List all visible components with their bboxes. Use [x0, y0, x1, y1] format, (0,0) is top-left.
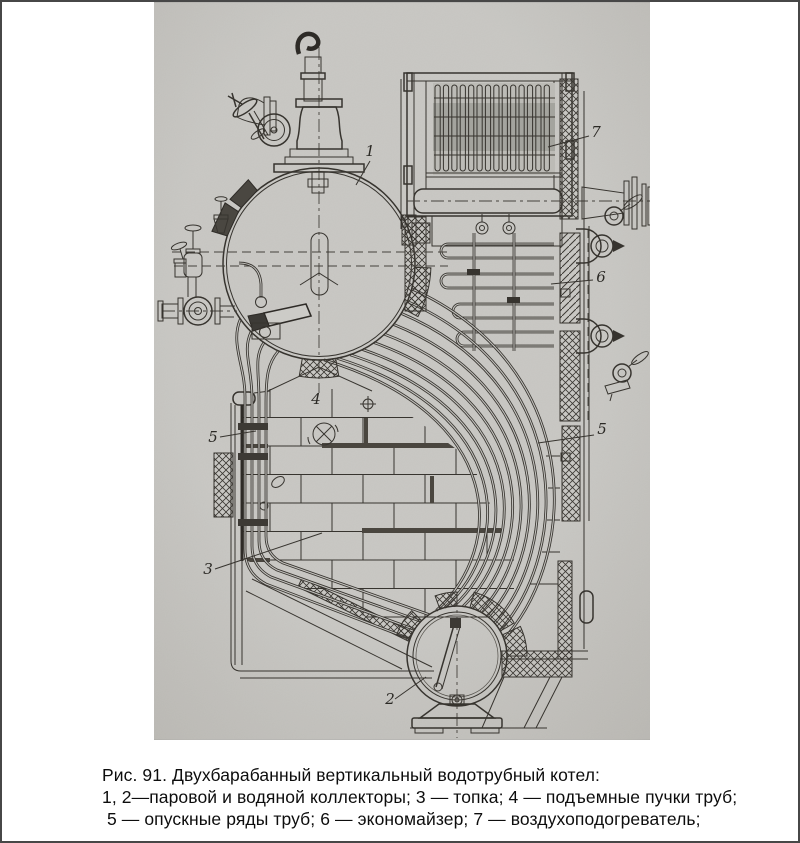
label-furnace: 3	[203, 560, 213, 578]
boiler-technical-drawing: 1 2 3 4 5 5 6 7	[154, 2, 650, 740]
caption-legend-line2: 5 — опускные ряды труб; 6 — экономайзер;…	[102, 808, 737, 830]
label-lower-drum: 2	[384, 690, 395, 708]
label-downcomers-right: 5	[597, 420, 607, 438]
caption-legend-line1: 1, 2—паровой и водяной коллекторы; 3 — т…	[102, 786, 737, 808]
label-riser-tubes: 4	[310, 390, 321, 408]
label-economizer: 6	[596, 268, 606, 286]
figure-caption: Рис. 91. Двухбарабанный вертикальный вод…	[102, 764, 737, 830]
caption-title: Рис. 91. Двухбарабанный вертикальный вод…	[102, 764, 737, 786]
label-upper-drum: 1	[365, 142, 375, 160]
figure-scan-area: 1 2 3 4 5 5 6 7	[154, 2, 650, 740]
label-downcomers-left: 5	[208, 428, 218, 446]
label-air-preheater: 7	[591, 123, 601, 141]
wall-hatch-block	[214, 453, 233, 517]
scanned-book-page: 1 2 3 4 5 5 6 7 Рис. 91. Двухбарабанный …	[0, 0, 800, 843]
